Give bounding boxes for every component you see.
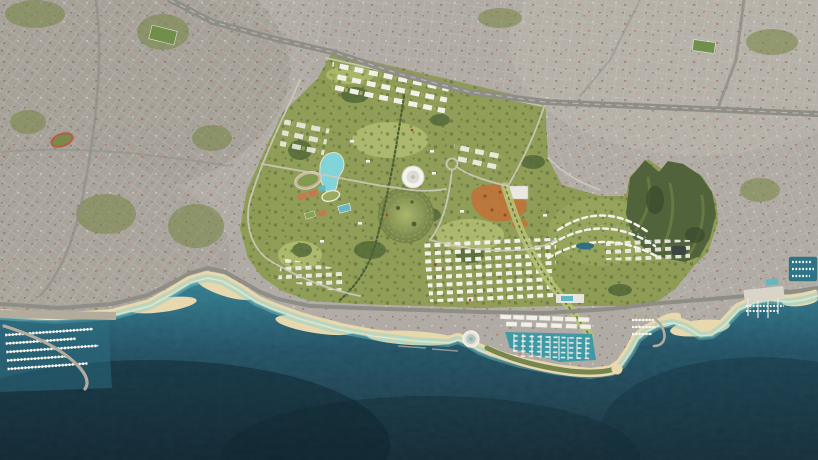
round-beach-club	[463, 331, 479, 347]
rooftop-pool-deck	[556, 294, 584, 303]
round-arena	[402, 166, 424, 188]
beach-club-pool	[766, 278, 779, 285]
crescent-pond	[576, 243, 594, 250]
aerial-render	[0, 0, 818, 460]
satellite-render-canvas	[0, 0, 818, 460]
alimos-marina	[0, 310, 116, 392]
moored-yachts	[512, 335, 591, 360]
peninsula-tip	[612, 364, 623, 375]
basin-piers	[512, 334, 591, 360]
harbor-basin	[788, 256, 818, 282]
sports-hall-building	[672, 246, 686, 255]
